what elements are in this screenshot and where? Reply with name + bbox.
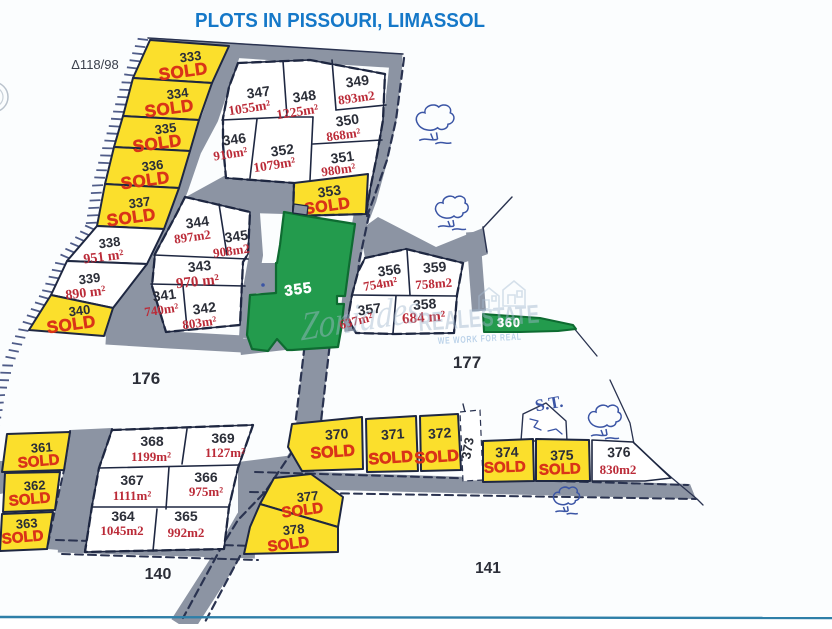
svg-text:359: 359: [422, 258, 447, 276]
svg-text:SOLD: SOLD: [539, 460, 581, 478]
svg-text:SOLD: SOLD: [8, 489, 51, 510]
svg-text:PLOTS IN PISSOURI, LIMASSOL: PLOTS IN PISSOURI, LIMASSOL: [195, 10, 485, 32]
svg-text:176: 176: [132, 369, 160, 388]
svg-text:SOLD: SOLD: [310, 442, 356, 462]
svg-text:371: 371: [380, 425, 405, 443]
svg-text:370: 370: [324, 425, 349, 443]
svg-text:365: 365: [174, 508, 198, 524]
svg-text:1199m²: 1199m²: [131, 449, 171, 464]
svg-text:376: 376: [607, 444, 631, 461]
svg-text:364: 364: [111, 508, 135, 524]
svg-text:140: 140: [145, 566, 172, 583]
svg-text:SOLD: SOLD: [17, 451, 60, 472]
svg-text:1045m2: 1045m2: [100, 523, 143, 538]
svg-text:367: 367: [120, 472, 144, 488]
svg-text:1127m²: 1127m²: [205, 445, 245, 460]
svg-text:SOLD: SOLD: [368, 448, 414, 468]
svg-text:SOLD: SOLD: [484, 458, 526, 476]
svg-text:141: 141: [475, 560, 501, 577]
svg-text:975m²: 975m²: [189, 484, 223, 499]
svg-text:1111m²: 1111m²: [113, 488, 152, 503]
svg-text:SOLD: SOLD: [414, 447, 460, 467]
svg-text:366: 366: [194, 469, 218, 485]
svg-text:369: 369: [211, 430, 235, 446]
svg-text:Δ118/98: Δ118/98: [71, 57, 118, 72]
svg-text:830m2: 830m2: [600, 462, 637, 477]
svg-text:758m2: 758m2: [415, 275, 453, 293]
svg-text:992m2: 992m2: [168, 525, 205, 540]
svg-text:177: 177: [453, 353, 481, 372]
svg-text:368: 368: [140, 433, 164, 449]
svg-text:SOLD: SOLD: [1, 527, 44, 548]
svg-text:372: 372: [427, 424, 452, 442]
